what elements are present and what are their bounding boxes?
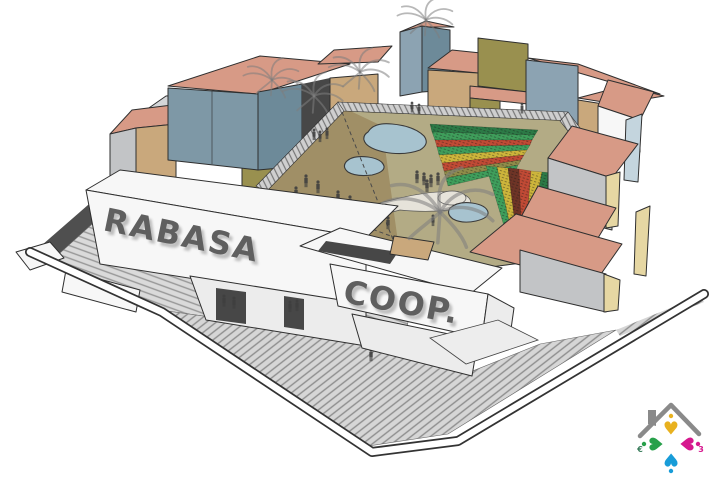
logo-three-symbol: 3 — [698, 445, 704, 454]
logo-head-dot — [669, 414, 673, 418]
logo-chimney-icon — [648, 410, 656, 426]
logo-heart-blue-icon: ♥ — [663, 449, 679, 470]
rendering-scene: RABASA RABASA COOP. COOP. ♥ ♥ ♥ ♥ € 3 — [0, 0, 710, 480]
olive-cube-wall — [478, 38, 528, 92]
house-gable-end — [604, 274, 620, 312]
coop-logo: ♥ ♥ ♥ ♥ € 3 — [636, 405, 704, 473]
gable-sliver — [634, 206, 650, 276]
pond-medium — [344, 157, 384, 176]
tan-cube-roof — [318, 46, 392, 64]
logo-euro-symbol: € — [636, 445, 643, 454]
doorway — [284, 296, 304, 330]
architectural-rendering-canvas: RABASA RABASA COOP. COOP. ♥ ♥ ♥ ♥ € 3 — [0, 0, 710, 480]
doorway — [216, 288, 246, 324]
teal-block-wall-left — [168, 88, 258, 170]
logo-head-dot — [669, 469, 673, 473]
palm-cube-left-wall — [400, 26, 422, 96]
